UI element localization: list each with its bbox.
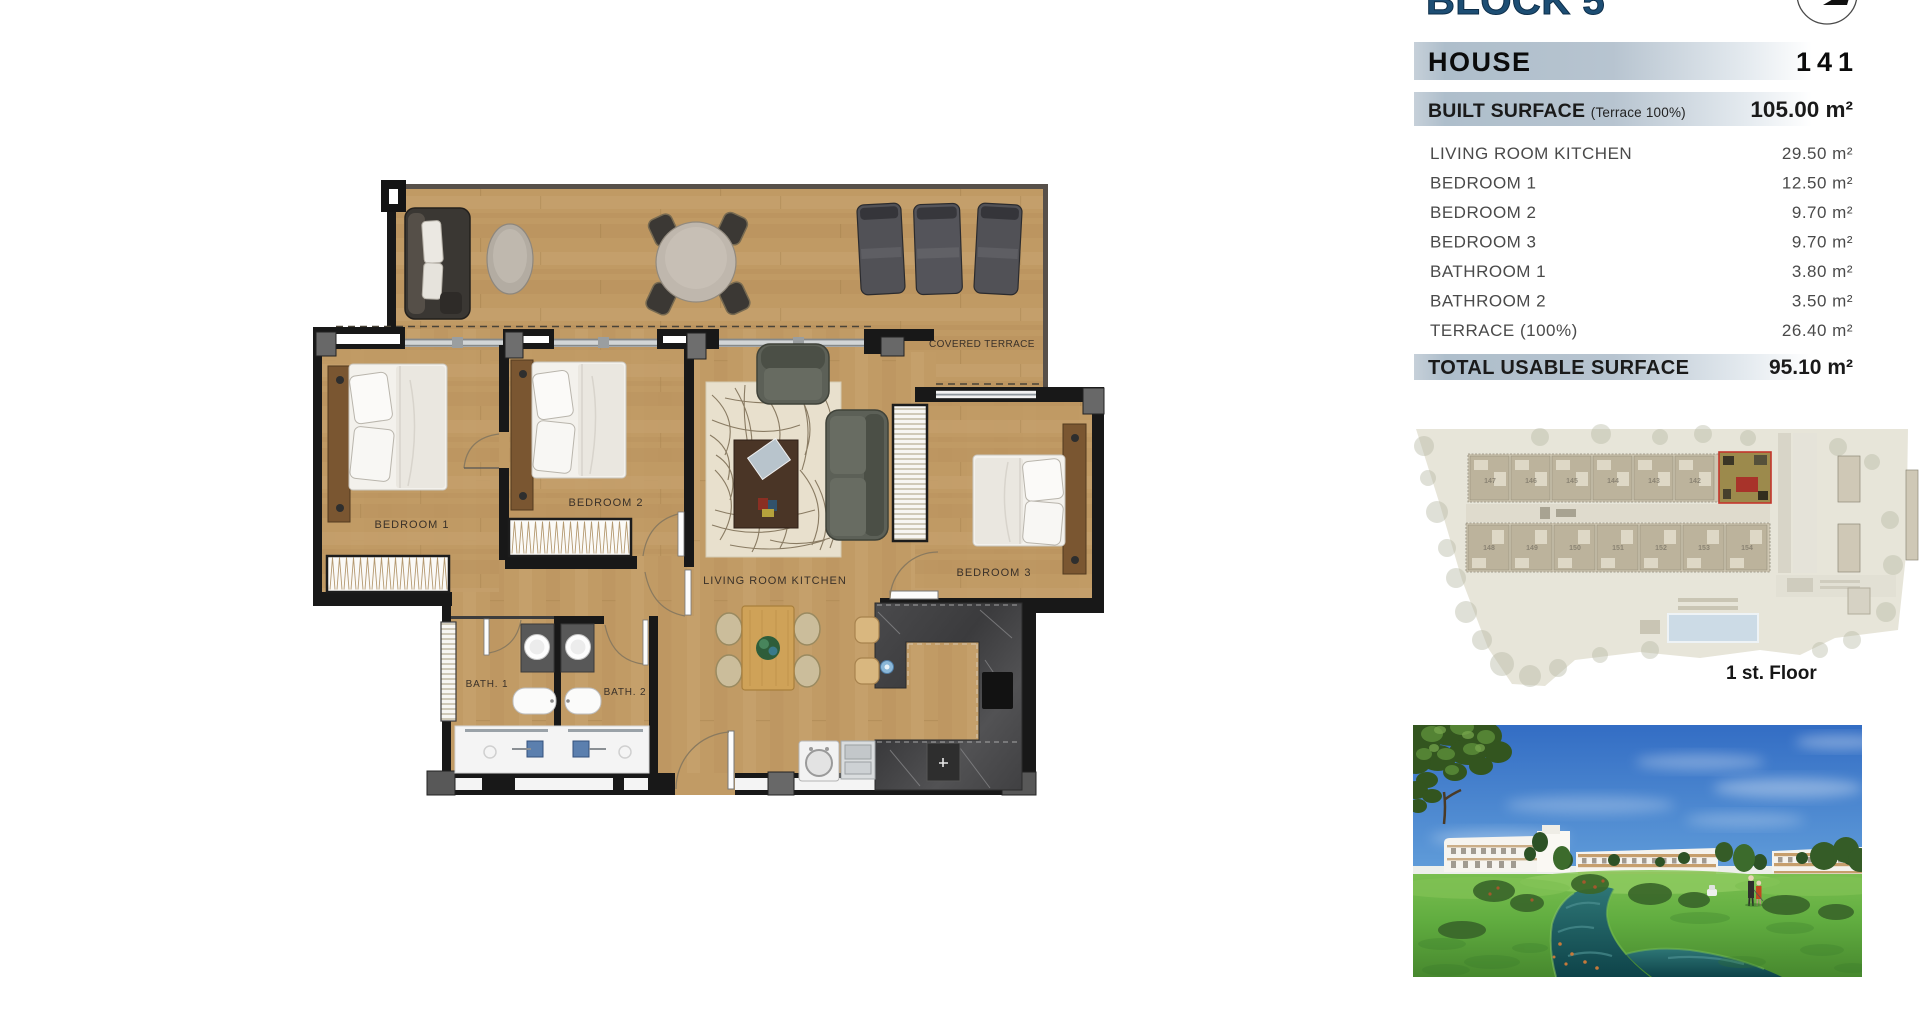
svg-text:146: 146	[1525, 478, 1537, 485]
svg-text:148: 148	[1483, 545, 1495, 552]
svg-text:149: 149	[1526, 545, 1538, 552]
svg-text:BEDROOM 2: BEDROOM 2	[568, 497, 643, 509]
svg-text:BEDROOM 2: BEDROOM 2	[1430, 203, 1537, 222]
svg-text:BEDROOM 1: BEDROOM 1	[1430, 174, 1537, 193]
svg-text:BATHROOM 1: BATHROOM 1	[1430, 262, 1546, 281]
svg-text:BEDROOM 1: BEDROOM 1	[374, 519, 449, 531]
svg-text:151: 151	[1612, 545, 1624, 552]
svg-text:3.80 m²: 3.80 m²	[1792, 262, 1853, 281]
svg-text:153: 153	[1698, 545, 1710, 552]
svg-text:BATHROOM 2: BATHROOM 2	[1430, 292, 1546, 311]
svg-text:29.50 m²: 29.50 m²	[1782, 144, 1853, 163]
svg-text:1 st. Floor: 1 st. Floor	[1726, 663, 1817, 684]
svg-text:COVERED TERRACE: COVERED TERRACE	[929, 339, 1035, 350]
svg-text:154: 154	[1741, 545, 1753, 552]
svg-text:147: 147	[1484, 478, 1496, 485]
svg-text:141: 141	[1796, 47, 1859, 77]
svg-text:BEDROOM 3: BEDROOM 3	[1430, 233, 1537, 252]
svg-text:LIVING ROOM KITCHEN: LIVING ROOM KITCHEN	[703, 575, 847, 587]
svg-text:105.00 m²: 105.00 m²	[1750, 97, 1853, 122]
svg-text:26.40 m²: 26.40 m²	[1782, 321, 1853, 340]
svg-text:HOUSE: HOUSE	[1428, 47, 1532, 77]
svg-text:142: 142	[1689, 478, 1701, 485]
svg-text:150: 150	[1569, 545, 1581, 552]
svg-text:BATH. 2: BATH. 2	[604, 687, 647, 698]
svg-text:TERRACE (100%): TERRACE (100%)	[1430, 321, 1578, 340]
svg-text:152: 152	[1655, 545, 1667, 552]
svg-text:9.70 m²: 9.70 m²	[1792, 233, 1853, 252]
svg-text:9.70 m²: 9.70 m²	[1792, 203, 1853, 222]
svg-text:144: 144	[1607, 478, 1619, 485]
svg-text:95.10 m²: 95.10 m²	[1769, 356, 1853, 379]
svg-text:145: 145	[1566, 478, 1578, 485]
svg-text:BEDROOM 3: BEDROOM 3	[956, 567, 1031, 579]
svg-text:TOTAL USABLE SURFACE: TOTAL USABLE SURFACE	[1428, 357, 1689, 379]
svg-text:BLOCK 5: BLOCK 5	[1426, 0, 1605, 23]
svg-text:BATH. 1: BATH. 1	[466, 679, 509, 690]
svg-text:3.50 m²: 3.50 m²	[1792, 292, 1853, 311]
svg-text:143: 143	[1648, 478, 1660, 485]
svg-text:LIVING ROOM KITCHEN: LIVING ROOM KITCHEN	[1430, 144, 1632, 163]
svg-text:12.50 m²: 12.50 m²	[1782, 174, 1853, 193]
